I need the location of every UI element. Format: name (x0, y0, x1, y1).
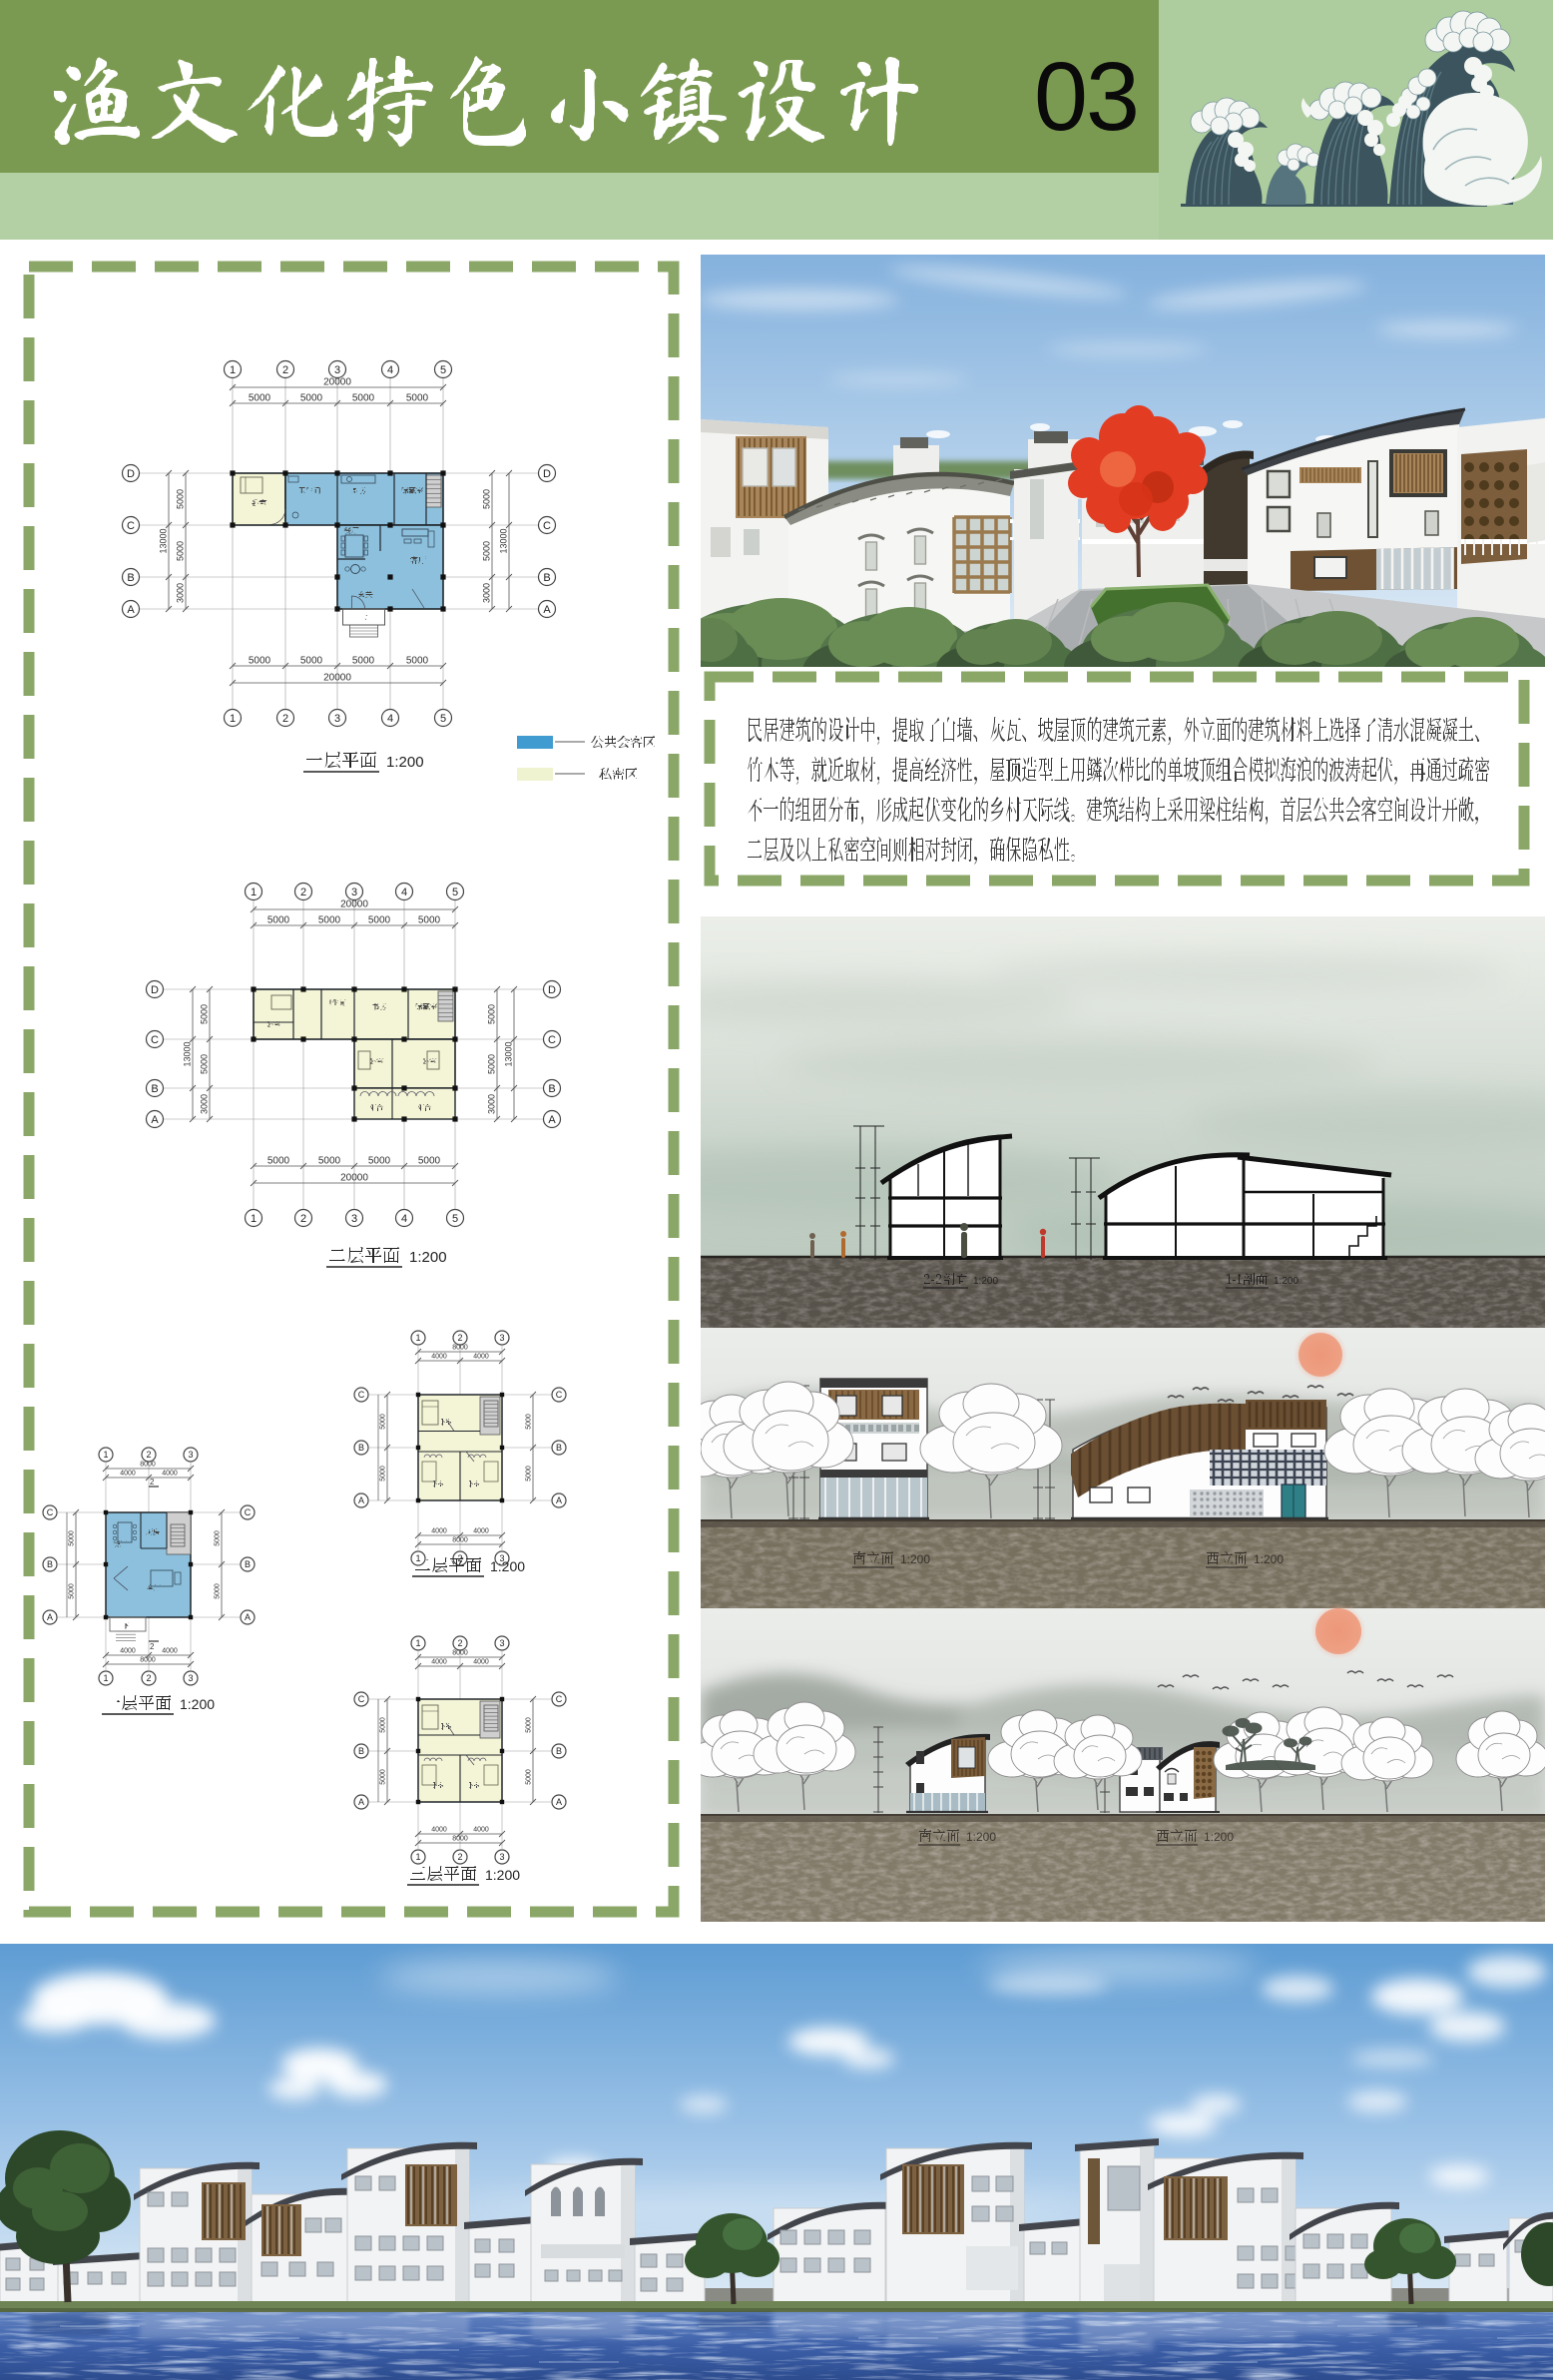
svg-text:3: 3 (499, 1333, 504, 1343)
svg-text:20000: 20000 (340, 899, 368, 910)
svg-text:5: 5 (452, 887, 458, 898)
svg-text:A: A (47, 1612, 53, 1622)
svg-text:C: C (358, 1390, 365, 1400)
svg-text:5: 5 (440, 713, 446, 725)
svg-text:C: C (543, 520, 551, 532)
svg-text:5000: 5000 (200, 1004, 210, 1024)
svg-text:B: B (543, 572, 550, 584)
svg-text:4000: 4000 (473, 1354, 489, 1361)
svg-text:5000: 5000 (69, 1583, 76, 1599)
svg-text:1: 1 (415, 1638, 420, 1648)
svg-text:4: 4 (387, 713, 393, 725)
svg-text:5000: 5000 (176, 489, 186, 509)
svg-text:1:200: 1:200 (1204, 1830, 1234, 1844)
svg-text:3: 3 (499, 1638, 504, 1648)
svg-text:B: B (47, 1559, 53, 1569)
svg-text:5000: 5000 (318, 915, 341, 926)
svg-text:4: 4 (401, 1213, 407, 1225)
svg-text:4000: 4000 (162, 1471, 178, 1478)
svg-text:5000: 5000 (368, 1156, 391, 1167)
svg-text:2: 2 (282, 713, 288, 725)
svg-text:20000: 20000 (323, 673, 351, 684)
svg-text:A: A (556, 1495, 562, 1505)
svg-text:C: C (151, 1034, 159, 1046)
svg-text:5000: 5000 (249, 656, 271, 667)
svg-text:C: C (556, 1694, 563, 1704)
svg-text:2: 2 (457, 1638, 462, 1648)
svg-text:5000: 5000 (215, 1583, 222, 1599)
svg-text:5000: 5000 (380, 1466, 387, 1482)
svg-text:5000: 5000 (200, 1054, 210, 1074)
svg-text:4000: 4000 (431, 1354, 447, 1361)
svg-text:A: A (543, 604, 551, 616)
svg-text:3: 3 (188, 1673, 193, 1683)
svg-text:B: B (556, 1746, 562, 1756)
svg-text:20000: 20000 (323, 377, 351, 388)
svg-text:4000: 4000 (162, 1648, 178, 1655)
svg-text:3: 3 (334, 713, 340, 725)
svg-text:5000: 5000 (249, 393, 271, 404)
svg-text:2: 2 (150, 1642, 155, 1651)
svg-text:A: A (151, 1114, 159, 1126)
svg-text:B: B (358, 1443, 364, 1453)
svg-text:B: B (245, 1559, 251, 1569)
svg-text:4000: 4000 (473, 1659, 489, 1666)
svg-text:B: B (151, 1083, 158, 1095)
svg-text:2: 2 (150, 1478, 155, 1487)
svg-text:1: 1 (230, 713, 236, 725)
svg-text:5000: 5000 (482, 541, 492, 561)
svg-text:A: A (556, 1797, 562, 1807)
svg-text:4000: 4000 (473, 1827, 489, 1834)
svg-text:2: 2 (457, 1852, 462, 1862)
svg-text:1:200: 1:200 (900, 1552, 930, 1566)
svg-text:4000: 4000 (120, 1471, 136, 1478)
svg-text:20000: 20000 (340, 1173, 368, 1184)
svg-text:2: 2 (300, 887, 306, 898)
svg-text:B: B (358, 1746, 364, 1756)
svg-text:5000: 5000 (406, 656, 429, 667)
svg-text:5000: 5000 (526, 1414, 533, 1430)
svg-text:5000: 5000 (526, 1717, 533, 1733)
svg-text:3000: 3000 (176, 583, 186, 603)
svg-text:5: 5 (452, 1213, 458, 1225)
svg-text:5000: 5000 (380, 1414, 387, 1430)
svg-text:8000: 8000 (452, 1836, 468, 1843)
svg-text:5000: 5000 (300, 393, 323, 404)
svg-text:D: D (151, 984, 159, 996)
svg-text:1: 1 (103, 1450, 108, 1460)
svg-text:1: 1 (251, 887, 257, 898)
svg-text:5000: 5000 (318, 1156, 341, 1167)
svg-text:5000: 5000 (352, 656, 375, 667)
svg-text:5000: 5000 (406, 393, 429, 404)
svg-text:4000: 4000 (431, 1827, 447, 1834)
svg-text:5000: 5000 (267, 1156, 290, 1167)
svg-text:03: 03 (1034, 42, 1138, 151)
svg-text:1:200: 1:200 (485, 1867, 520, 1883)
svg-text:3: 3 (188, 1450, 193, 1460)
svg-text:1:200: 1:200 (1274, 1276, 1298, 1287)
svg-text:13000: 13000 (159, 528, 169, 553)
svg-text:5000: 5000 (368, 915, 391, 926)
svg-text:C: C (47, 1507, 54, 1517)
svg-text:1:200: 1:200 (973, 1276, 998, 1287)
svg-text:4000: 4000 (431, 1659, 447, 1666)
svg-text:2: 2 (300, 1213, 306, 1225)
svg-text:2: 2 (457, 1333, 462, 1343)
svg-text:A: A (358, 1797, 364, 1807)
svg-text:3000: 3000 (482, 583, 492, 603)
svg-text:1: 1 (251, 1213, 257, 1225)
svg-text:D: D (543, 468, 551, 480)
svg-text:A: A (127, 604, 135, 616)
svg-text:1: 1 (415, 1553, 420, 1563)
svg-text:3: 3 (499, 1852, 504, 1862)
svg-text:4: 4 (401, 887, 407, 898)
svg-text:5000: 5000 (215, 1530, 222, 1546)
svg-text:1: 1 (103, 1673, 108, 1683)
svg-text:B: B (556, 1443, 562, 1453)
svg-text:5000: 5000 (300, 656, 323, 667)
svg-text:5000: 5000 (380, 1769, 387, 1785)
svg-text:8000: 8000 (140, 1657, 156, 1664)
svg-text:1: 1 (415, 1333, 420, 1343)
svg-text:C: C (127, 520, 135, 532)
svg-text:1:200: 1:200 (490, 1558, 525, 1574)
svg-text:3000: 3000 (487, 1094, 497, 1114)
svg-text:5000: 5000 (380, 1717, 387, 1733)
svg-text:5000: 5000 (482, 489, 492, 509)
svg-text:2: 2 (146, 1673, 151, 1683)
svg-text:5000: 5000 (418, 915, 441, 926)
svg-text:8000: 8000 (452, 1537, 468, 1544)
svg-text:D: D (127, 468, 135, 480)
svg-text:3: 3 (334, 364, 340, 376)
svg-text:4: 4 (387, 364, 393, 376)
svg-text:3: 3 (351, 887, 357, 898)
svg-text:C: C (358, 1694, 365, 1704)
svg-text:3: 3 (351, 1213, 357, 1225)
svg-text:5000: 5000 (418, 1156, 441, 1167)
svg-text:4000: 4000 (431, 1528, 447, 1535)
svg-text:5000: 5000 (487, 1004, 497, 1024)
svg-text:A: A (245, 1612, 251, 1622)
svg-text:3000: 3000 (200, 1094, 210, 1114)
svg-text:5000: 5000 (487, 1054, 497, 1074)
svg-text:5000: 5000 (526, 1769, 533, 1785)
svg-text:5: 5 (440, 364, 446, 376)
svg-text:1:200: 1:200 (1254, 1552, 1284, 1566)
svg-text:13000: 13000 (499, 528, 509, 553)
svg-text:D: D (548, 984, 556, 996)
svg-text:1:200: 1:200 (409, 1249, 447, 1266)
svg-text:2: 2 (282, 364, 288, 376)
svg-text:5000: 5000 (267, 915, 290, 926)
svg-text:C: C (548, 1034, 556, 1046)
svg-text:4000: 4000 (473, 1528, 489, 1535)
svg-text:5000: 5000 (176, 541, 186, 561)
svg-text:13000: 13000 (183, 1041, 193, 1066)
svg-text:B: B (127, 572, 134, 584)
svg-text:2: 2 (146, 1450, 151, 1460)
svg-text:5000: 5000 (69, 1530, 76, 1546)
svg-text:B: B (548, 1083, 555, 1095)
svg-text:5000: 5000 (352, 393, 375, 404)
svg-text:1: 1 (230, 364, 236, 376)
svg-text:4000: 4000 (120, 1648, 136, 1655)
svg-text:5000: 5000 (526, 1466, 533, 1482)
svg-text:C: C (556, 1390, 563, 1400)
svg-text:1:200: 1:200 (966, 1830, 996, 1844)
svg-text:A: A (358, 1495, 364, 1505)
svg-text:13000: 13000 (504, 1041, 514, 1066)
svg-text:1: 1 (415, 1852, 420, 1862)
svg-text:C: C (245, 1507, 252, 1517)
svg-text:1:200: 1:200 (180, 1696, 215, 1712)
svg-text:8000: 8000 (140, 1462, 156, 1469)
svg-text:A: A (548, 1114, 556, 1126)
svg-text:1:200: 1:200 (386, 754, 424, 771)
